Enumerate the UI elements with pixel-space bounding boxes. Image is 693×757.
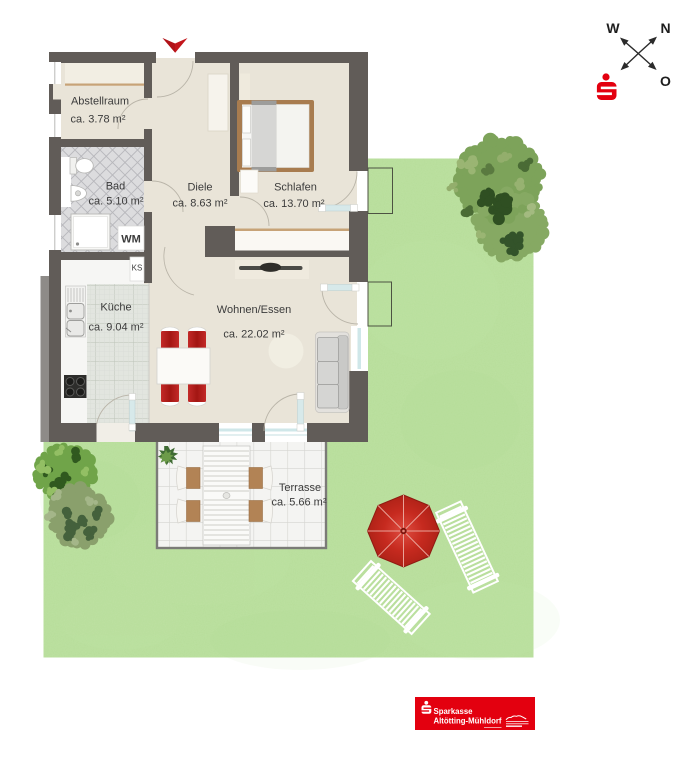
svg-text:Wohnen/Essen: Wohnen/Essen [217,304,291,316]
svg-text:O: O [660,73,671,89]
svg-text:Küche: Küche [100,302,131,314]
svg-text:Sparkasse: Sparkasse [434,707,474,716]
svg-text:ca. 3.78 m²: ca. 3.78 m² [70,114,125,126]
svg-text:Schlafen: Schlafen [274,182,317,194]
svg-text:Altötting-Mühldorf: Altötting-Mühldorf [434,717,502,726]
svg-text:N: N [660,20,670,36]
svg-text:Bad: Bad [106,181,126,193]
svg-text:ca. 8.63 m²: ca. 8.63 m² [172,198,227,210]
svg-text:Terrasse: Terrasse [279,482,321,494]
svg-text:Abstellraum: Abstellraum [71,96,129,108]
svg-text:KS: KS [132,264,143,273]
svg-text:ca. 22.02 m²: ca. 22.02 m² [223,329,284,341]
svg-text:ca. 13.70 m²: ca. 13.70 m² [263,198,324,210]
svg-text:ca. 5.66 m²: ca. 5.66 m² [271,497,326,509]
svg-text:W: W [606,20,620,36]
svg-text:Diele: Diele [187,182,212,194]
svg-text:ca. 5.10 m²: ca. 5.10 m² [88,196,143,208]
svg-text:WM: WM [121,234,141,246]
svg-text:ca. 9.04 m²: ca. 9.04 m² [88,322,143,334]
